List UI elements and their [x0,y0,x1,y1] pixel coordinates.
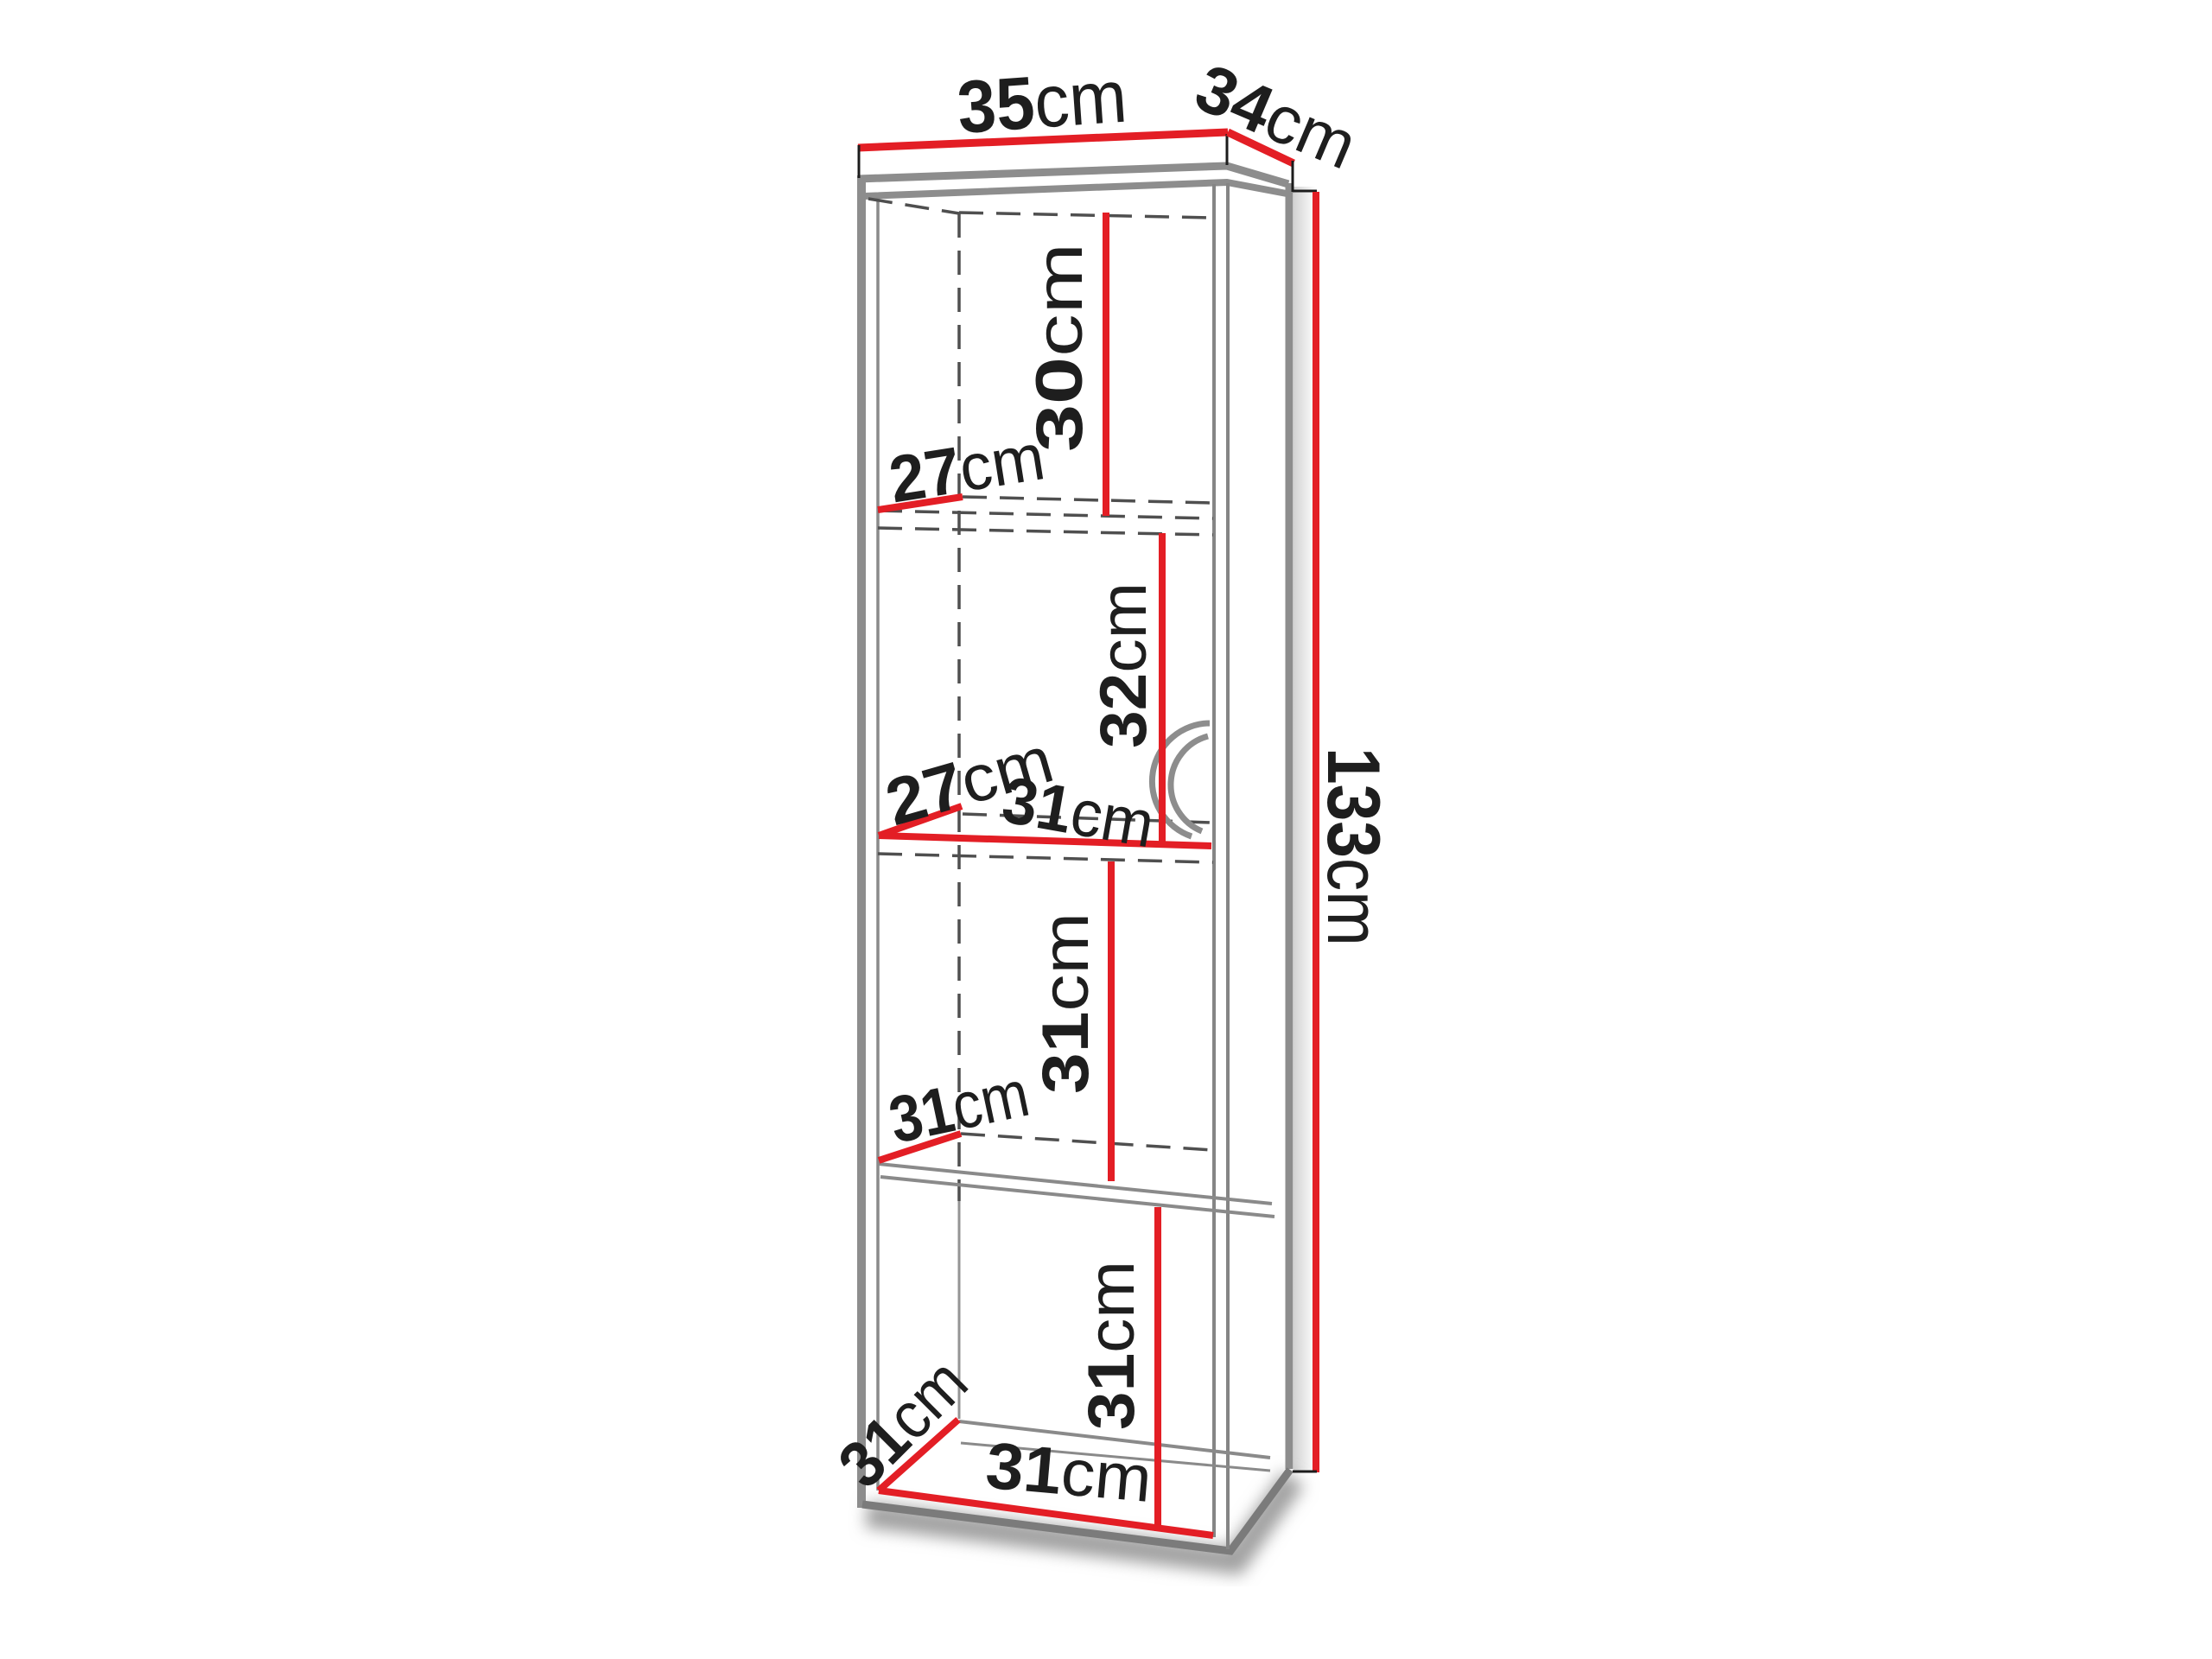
svg-text:31cm: 31cm [1075,1261,1148,1430]
svg-text:35cm: 35cm [955,55,1129,149]
svg-text:32cm: 32cm [1087,582,1160,748]
svg-text:31cm: 31cm [983,1429,1155,1516]
svg-text:31cm: 31cm [1029,912,1103,1094]
svg-text:133cm: 133cm [1312,747,1395,946]
